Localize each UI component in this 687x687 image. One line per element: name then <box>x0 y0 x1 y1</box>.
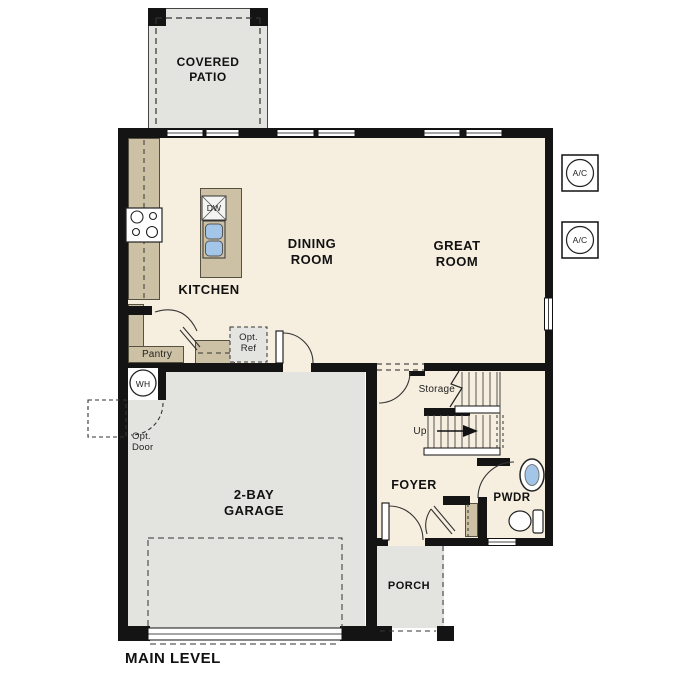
ac-label-2: A/C <box>562 235 598 246</box>
pwdr-label: PWDR <box>487 490 537 506</box>
garage-car-area <box>148 538 342 628</box>
dw-label: DW <box>203 203 225 214</box>
opt-ref-label: Opt. Ref <box>230 332 267 354</box>
powder-sink <box>520 459 544 491</box>
toilet <box>509 510 543 533</box>
front-door <box>382 503 423 540</box>
up-arrow <box>437 425 478 437</box>
garage-label: 2-BAY GARAGE <box>210 487 298 519</box>
opt-door-line2: Door <box>132 442 153 453</box>
opt-door-line1: Opt. <box>132 431 151 442</box>
wh-label: WH <box>129 379 157 390</box>
doors <box>88 310 514 540</box>
garage-entry-door <box>276 331 313 363</box>
kitchen-sink <box>203 221 225 258</box>
opt-ref-line1: Opt. <box>239 332 258 343</box>
pantry-door <box>155 310 200 350</box>
windows <box>167 130 553 546</box>
main-level-title: MAIN LEVEL <box>125 651 325 667</box>
plan-linework <box>0 0 687 687</box>
pantry-label: Pantry <box>132 349 182 360</box>
opt-door-label: Opt. Door <box>132 431 174 453</box>
up-label: Up <box>408 426 432 437</box>
storage-label: Storage <box>405 384 455 395</box>
floor-plan: COVERED PATIO DINING ROOM GREAT ROOM KIT… <box>0 0 687 687</box>
porch-label: PORCH <box>381 578 437 594</box>
range-cooktop <box>126 208 162 242</box>
opt-ref-line2: Ref <box>241 343 256 354</box>
great-room-label: GREAT ROOM <box>415 238 499 270</box>
garage-overhead-door <box>148 628 342 644</box>
closet-door <box>426 506 455 534</box>
dining-room-label: DINING ROOM <box>270 236 354 268</box>
ac-label-1: A/C <box>562 168 598 179</box>
foyer-label: FOYER <box>382 477 446 493</box>
covered-patio-label: COVERED PATIO <box>157 55 259 85</box>
kitchen-label: KITCHEN <box>170 282 248 298</box>
